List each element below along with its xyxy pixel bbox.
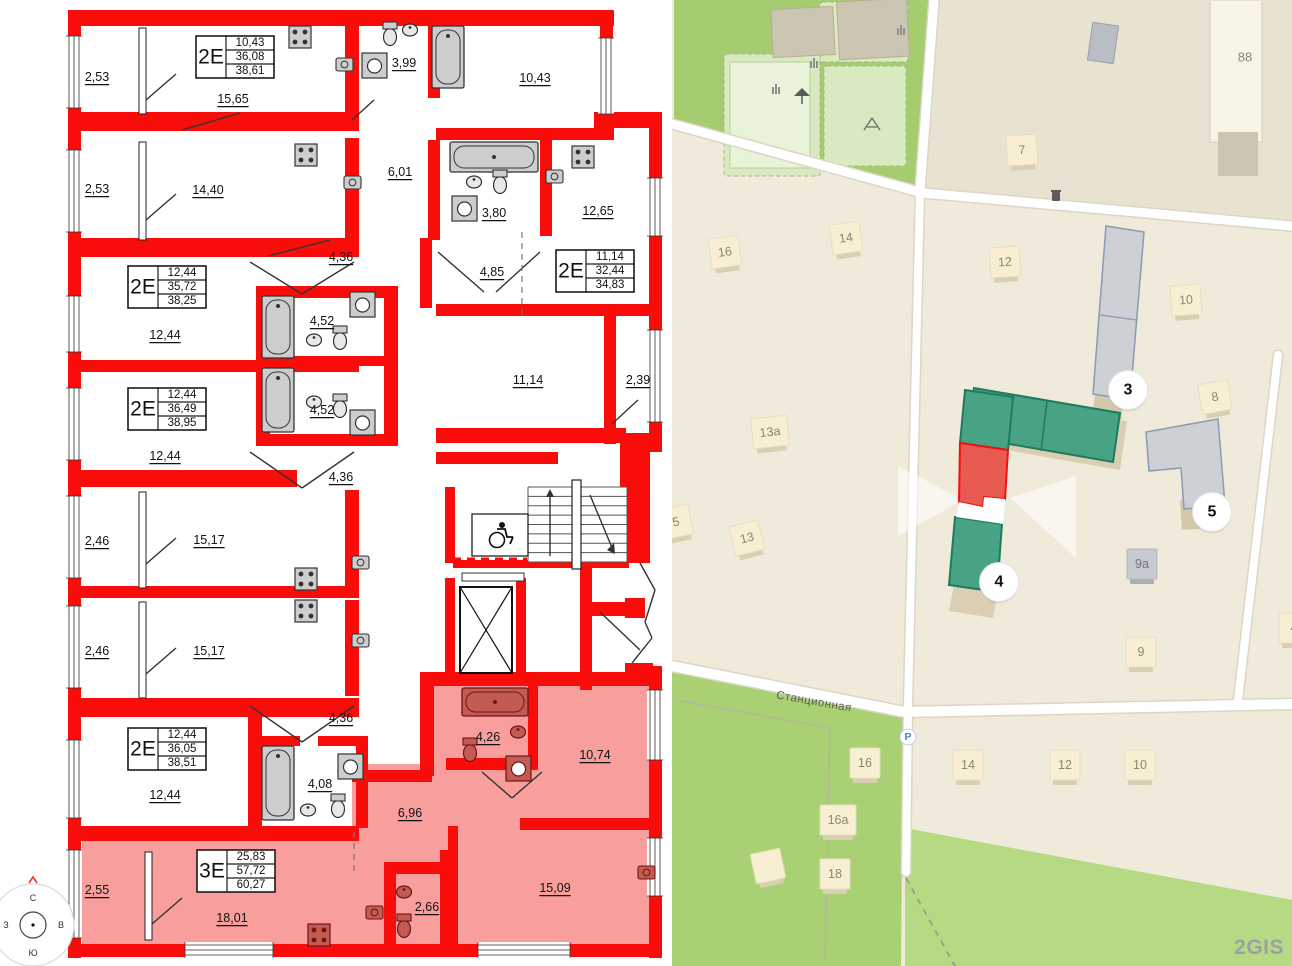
unit-area-value: 12,44 [168, 729, 197, 741]
map-house-marker[interactable]: 9 [1126, 637, 1156, 672]
unit-area-value: 12,44 [168, 267, 197, 279]
map-panel[interactable]: 88161412108713а13541616а1814121099а345Ст… [672, 0, 1292, 966]
kitchen-sink-icon [366, 906, 383, 919]
room-area-label: 4,52 [310, 314, 334, 328]
room-area-label: 4,36 [329, 250, 353, 264]
room-area-label: 3,80 [482, 206, 506, 220]
room-area-label: 4,36 [329, 711, 353, 725]
svg-text:С: С [30, 893, 37, 903]
map-house-marker[interactable]: 14 [829, 221, 864, 260]
wall [528, 686, 538, 766]
unit-area-value: 38,25 [168, 295, 197, 307]
room-area-label: 2,46 [85, 534, 109, 548]
house-number: 10 [1133, 758, 1147, 772]
house-number: 14 [961, 758, 975, 772]
wall [81, 826, 359, 841]
unit-type: 2Е [198, 46, 224, 69]
unit-area-value: 36,49 [168, 403, 197, 415]
room-area-label: 12,65 [582, 204, 613, 218]
house-number: 10 [1179, 293, 1194, 308]
room-area-label: 15,09 [539, 881, 570, 895]
house-number: 16а [828, 813, 849, 827]
wall [248, 736, 300, 746]
room-area-label: 12,44 [149, 449, 180, 463]
toilet-icon [333, 326, 347, 350]
wall [428, 140, 440, 240]
house-number: 7 [1018, 143, 1026, 157]
map-house-marker[interactable]: 16 [850, 748, 880, 783]
wall [68, 944, 662, 957]
wall [436, 452, 558, 464]
house-number: 12 [1058, 758, 1072, 772]
unit-type: 2Е [558, 260, 584, 283]
bathtub-icon [432, 26, 464, 88]
toilet-icon [331, 794, 345, 818]
svg-text:5: 5 [1208, 504, 1217, 521]
room-area-label: 14,40 [192, 183, 223, 197]
room-area-label: 15,17 [193, 533, 224, 547]
wall [318, 736, 368, 746]
balcony-partition [139, 28, 146, 114]
sink-icon [301, 804, 316, 816]
room-area-label: 6,01 [388, 165, 412, 179]
building [1087, 22, 1118, 63]
map-house-marker[interactable]: 14 [953, 750, 983, 785]
kitchen-sink-icon [344, 176, 361, 189]
kitchen-sink-icon [352, 556, 369, 569]
map-house-marker[interactable]: 10 [1170, 284, 1202, 321]
wall [345, 600, 359, 696]
wall [420, 672, 434, 776]
stove-icon [295, 600, 317, 622]
stove-icon [295, 144, 317, 166]
kitchen-sink-icon [352, 634, 369, 647]
map-house-marker[interactable]: 18 [820, 859, 850, 894]
washer-icon [338, 754, 363, 779]
unit-area-value: 60,27 [237, 879, 266, 891]
wall [436, 304, 662, 316]
wall [516, 578, 526, 678]
room-area-label: 2,39 [626, 373, 650, 387]
svg-text:4: 4 [995, 574, 1004, 591]
house-number: 13а [759, 424, 781, 440]
unit-type: 2Е [130, 276, 156, 299]
room-area-label: 4,36 [329, 470, 353, 484]
unit-area-value: 38,51 [168, 757, 197, 769]
building-badge-4[interactable]: 4 [980, 563, 1019, 604]
wall [352, 770, 432, 782]
building-badge-3[interactable]: 3 [1109, 371, 1148, 412]
unit-area-value: 38,95 [168, 417, 197, 429]
svg-text:В: В [58, 920, 64, 930]
unit-type: 2Е [130, 738, 156, 761]
house-number: 14 [838, 230, 854, 246]
wall [248, 712, 262, 826]
balcony-partition [139, 492, 146, 588]
svg-text:3: 3 [1124, 382, 1133, 399]
wall [420, 238, 432, 308]
house-number: 16 [858, 756, 872, 770]
unit-area-value: 57,72 [237, 865, 266, 877]
toilet-icon [493, 170, 507, 194]
room-area-label: 15,17 [193, 644, 224, 658]
floorplan-drawing: 2,5315,653,9910,432,5314,406,013,8012,65… [0, 0, 672, 966]
house-number: 12 [998, 255, 1013, 270]
map-canvas[interactable]: 88161412108713а13541616а1814121099а345Ст… [672, 0, 1292, 966]
svg-text:P: P [904, 731, 911, 743]
bathtub-icon [462, 688, 528, 716]
room-area-label: 4,26 [476, 730, 500, 744]
washer-icon [350, 410, 375, 435]
washer-icon [362, 53, 387, 78]
house-number: 9а [1135, 557, 1149, 571]
unit-info-box: 2Е12,4436,4938,95 [128, 388, 206, 430]
unit-info-box: 2Е12,4435,7238,25 [128, 266, 206, 308]
svg-text:Ю: Ю [28, 948, 37, 958]
map-house-marker[interactable] [750, 848, 787, 888]
sink-icon [307, 334, 322, 346]
unit-area-value: 10,43 [236, 37, 265, 49]
kitchen-sink-icon [546, 170, 563, 183]
listing-view: 2,5315,653,9910,432,5314,406,013,8012,65… [0, 0, 1292, 966]
room-area-label: 10,43 [519, 71, 550, 85]
unit-info-box: 3Е25,8357,7260,27 [197, 850, 275, 892]
wall [68, 10, 614, 26]
highlighted-unit-area [434, 678, 662, 944]
stairs [528, 480, 627, 569]
building-badge-5[interactable]: 5 [1193, 493, 1232, 534]
room-area-label: 4,52 [310, 403, 334, 417]
room-area-label: 12,44 [149, 328, 180, 342]
map-house-marker[interactable]: 10 [1125, 750, 1155, 785]
map-house-marker[interactable]: 13а [751, 415, 790, 454]
map-house-marker[interactable]: 8 [1198, 380, 1234, 420]
house-number: 18 [828, 867, 842, 881]
unit-info-box: 2Е11,1432,4434,83 [556, 250, 634, 292]
wall [384, 862, 396, 946]
house-number: 16 [717, 244, 733, 260]
wall [445, 578, 455, 678]
svg-text:З: З [3, 920, 8, 930]
unit-area-value: 12,44 [168, 389, 197, 401]
stove-icon [572, 146, 594, 168]
stove-icon [308, 924, 330, 946]
unit-type: 2Е [130, 398, 156, 421]
stove-icon [295, 568, 317, 590]
unit-area-value: 32,44 [596, 265, 625, 277]
wall [356, 740, 368, 828]
room-area-label: 4,08 [308, 777, 332, 791]
unit-area-value: 11,14 [596, 251, 625, 263]
map-provider-logo: 2GIS [1234, 936, 1284, 960]
trash-icon [1051, 190, 1061, 201]
wall [436, 428, 626, 443]
sink-icon [403, 24, 418, 36]
wall [81, 112, 359, 131]
wall [520, 818, 652, 830]
parking-icon[interactable]: P [900, 729, 916, 745]
wall [81, 238, 359, 257]
sink-icon [511, 726, 526, 738]
room-area-label: 10,74 [579, 748, 610, 762]
washer-icon [350, 292, 375, 317]
bathtub-icon [262, 746, 294, 820]
balcony-partition [145, 852, 152, 940]
wall [580, 560, 592, 690]
unit-info-box: 2Е12,4436,0538,51 [128, 728, 206, 770]
kitchen-sink-icon [638, 866, 655, 879]
map-house-marker[interactable]: 12 [989, 246, 1021, 283]
unit-area-value: 35,72 [168, 281, 197, 293]
wall [420, 672, 662, 686]
balcony-partition [139, 142, 146, 240]
map-house-marker[interactable]: 16а [820, 805, 856, 840]
selected-section [959, 443, 1008, 507]
wall [256, 434, 398, 446]
map-house-marker[interactable]: 4 [1279, 613, 1292, 648]
wheelchair-icon [472, 514, 528, 556]
unit-area-value: 36,05 [168, 743, 197, 755]
floorplan-panel: 2,5315,653,9910,432,5314,406,013,8012,65… [0, 0, 672, 966]
sink-icon [397, 886, 412, 898]
room-area-label: 18,01 [216, 911, 247, 925]
unit-type: 3Е [199, 860, 225, 883]
wall [345, 490, 359, 588]
room-area-label: 12,44 [149, 788, 180, 802]
room-area-label: 6,96 [398, 806, 422, 820]
wall [540, 140, 552, 236]
balcony-partition [139, 602, 146, 698]
room-area-label: 2,53 [85, 182, 109, 196]
wall [448, 826, 458, 946]
sink-icon [467, 176, 482, 188]
wall [604, 312, 616, 444]
wall [81, 470, 297, 487]
house-number: 9 [1138, 645, 1145, 659]
bathtub-icon [262, 368, 294, 432]
room-area-label: 2,53 [85, 70, 109, 84]
house-number: 88 [1238, 50, 1252, 65]
bathtub-icon [450, 142, 538, 172]
room-area-label: 2,55 [85, 883, 109, 897]
wall [625, 598, 645, 618]
washer-icon [452, 196, 477, 221]
stove-icon [289, 26, 311, 48]
unit-area-value: 38,61 [236, 65, 265, 77]
toilet-icon [333, 394, 347, 418]
bathtub-icon [262, 296, 294, 358]
park-building [771, 6, 835, 57]
room-area-label: 15,65 [217, 92, 248, 106]
unit-area-value: 34,83 [596, 279, 625, 291]
map-house-marker[interactable]: 7 [1006, 134, 1038, 171]
wall [445, 487, 455, 563]
room-area-label: 4,85 [480, 265, 504, 279]
map-house-marker[interactable]: 12 [1050, 750, 1080, 785]
room-area-label: 2,66 [415, 900, 439, 914]
unit-area-value: 36,08 [236, 51, 265, 63]
room-area-label: 2,46 [85, 644, 109, 658]
map-house-marker[interactable]: 9а [1127, 549, 1157, 584]
washer-icon [506, 756, 531, 781]
wall [81, 698, 359, 717]
unit-area-value: 25,83 [237, 851, 266, 863]
toilet-icon [397, 914, 411, 938]
kitchen-sink-icon [336, 58, 353, 71]
room-area-label: 11,14 [513, 373, 543, 387]
room-area-label: 3,99 [392, 56, 416, 70]
wall [436, 128, 614, 140]
unit-info-box: 2Е10,4336,0838,61 [196, 36, 274, 78]
toilet-icon [383, 22, 397, 46]
map-house-marker[interactable]: 16 [708, 235, 743, 274]
